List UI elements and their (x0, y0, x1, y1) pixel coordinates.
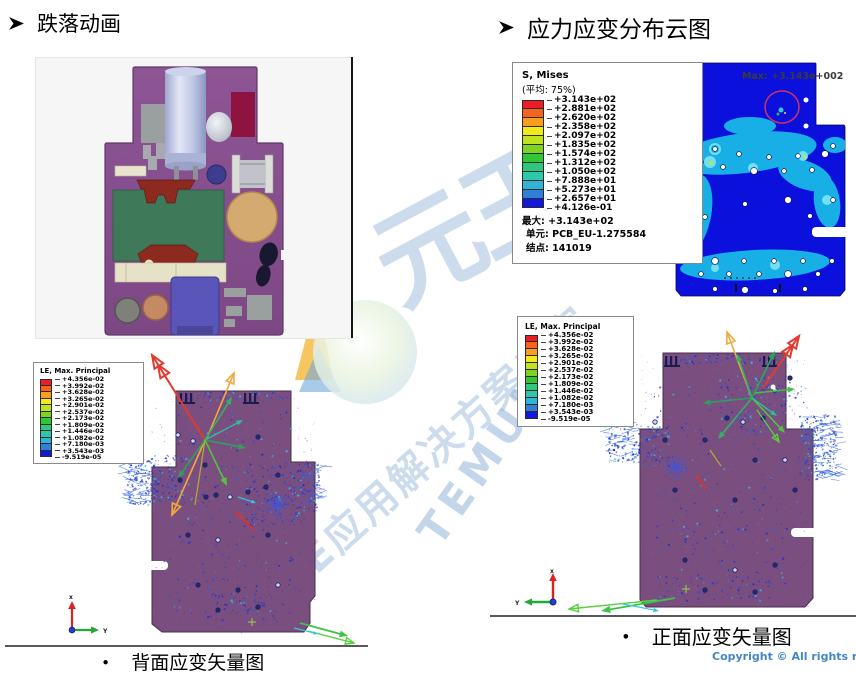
arrowhead-bullet-icon (498, 19, 515, 36)
pcb-front-board (640, 353, 813, 607)
slide: 元王 TEMUJIN CAE应用解决方案专家 跌落动画 应力应变分布云图 (0, 0, 856, 674)
caption-back-vector: •背面应变矢量图 (100, 648, 264, 674)
section-title-drop-animation: 跌落动画 (8, 8, 121, 38)
crimson-block (231, 92, 255, 137)
svg-text:x: x (69, 594, 73, 601)
arrowhead-bullet-icon (8, 15, 25, 32)
back-strain-vector-figure (118, 345, 378, 645)
section-title-stress-contour: 应力应变分布云图 (498, 10, 711, 44)
copyright-text: Copyright © All rights reserve (712, 650, 856, 663)
le-legend-front: LE, Max. Principal +4.356e-02+3.992e-02+… (517, 316, 634, 427)
copper-disc (143, 295, 168, 320)
legend-title: LE, Max. Principal (525, 322, 627, 331)
legend-colorbar (522, 100, 544, 208)
le-legend-back: LE, Max. Principal +4.356e-02+3.992e-02+… (33, 362, 144, 464)
legend-element: 单元: PCB_EU-1.275584 (526, 228, 694, 241)
svg-text:Y: Y (102, 628, 108, 635)
grey-disc (115, 298, 140, 323)
drop-animation-image (35, 57, 352, 339)
legend-title: LE, Max. Principal (40, 367, 138, 375)
legend-values: +4.356e-02+3.992e-02+3.628e-02+3.265e-02… (55, 379, 138, 457)
legend-node: 结点: 141019 (526, 242, 694, 255)
legend-footer: 最大: +3.143e+02 单元: PCB_EU-1.275584 结点: 1… (522, 215, 694, 255)
legend-colorbar (525, 335, 538, 419)
max-value-annotation: Max: +3.143e+002 (742, 71, 843, 82)
legend-title: S, Mises (522, 70, 694, 81)
divider-line (351, 57, 353, 338)
legend-max: 最大: +3.143e+02 (522, 215, 694, 228)
device-3d-model (36, 58, 351, 338)
mises-legend: S, Mises (平均: 75%) +3.143e+02+2.881e+02+… (512, 62, 703, 264)
section-title-text: 应力应变分布云图 (527, 10, 711, 44)
legend-subtitle: (平均: 75%) (522, 82, 694, 96)
capacitor (165, 67, 206, 180)
inductor-spool (232, 155, 273, 193)
section-title-text: 跌落动画 (37, 8, 121, 38)
blue-cap (207, 165, 226, 184)
legend-colorbar (40, 379, 52, 457)
caption-front-vector: •正面应变矢量图 (620, 621, 792, 650)
axis-triad-icon: x Y (55, 592, 110, 642)
svg-text:Y: Y (514, 600, 520, 607)
legend-values: +4.356e-02+3.992e-02+3.628e-02+3.265e-02… (541, 335, 627, 419)
egg-component (206, 112, 232, 142)
axis-triad-icon: x Y (513, 566, 573, 616)
tan-disc (227, 192, 277, 242)
caption-rule-left (5, 645, 368, 647)
heatsink-plate (141, 104, 166, 143)
legend-values: +3.143e+02+2.881e+02+2.620e+02+2.358e+02… (547, 100, 694, 208)
svg-text:x: x (550, 568, 554, 575)
